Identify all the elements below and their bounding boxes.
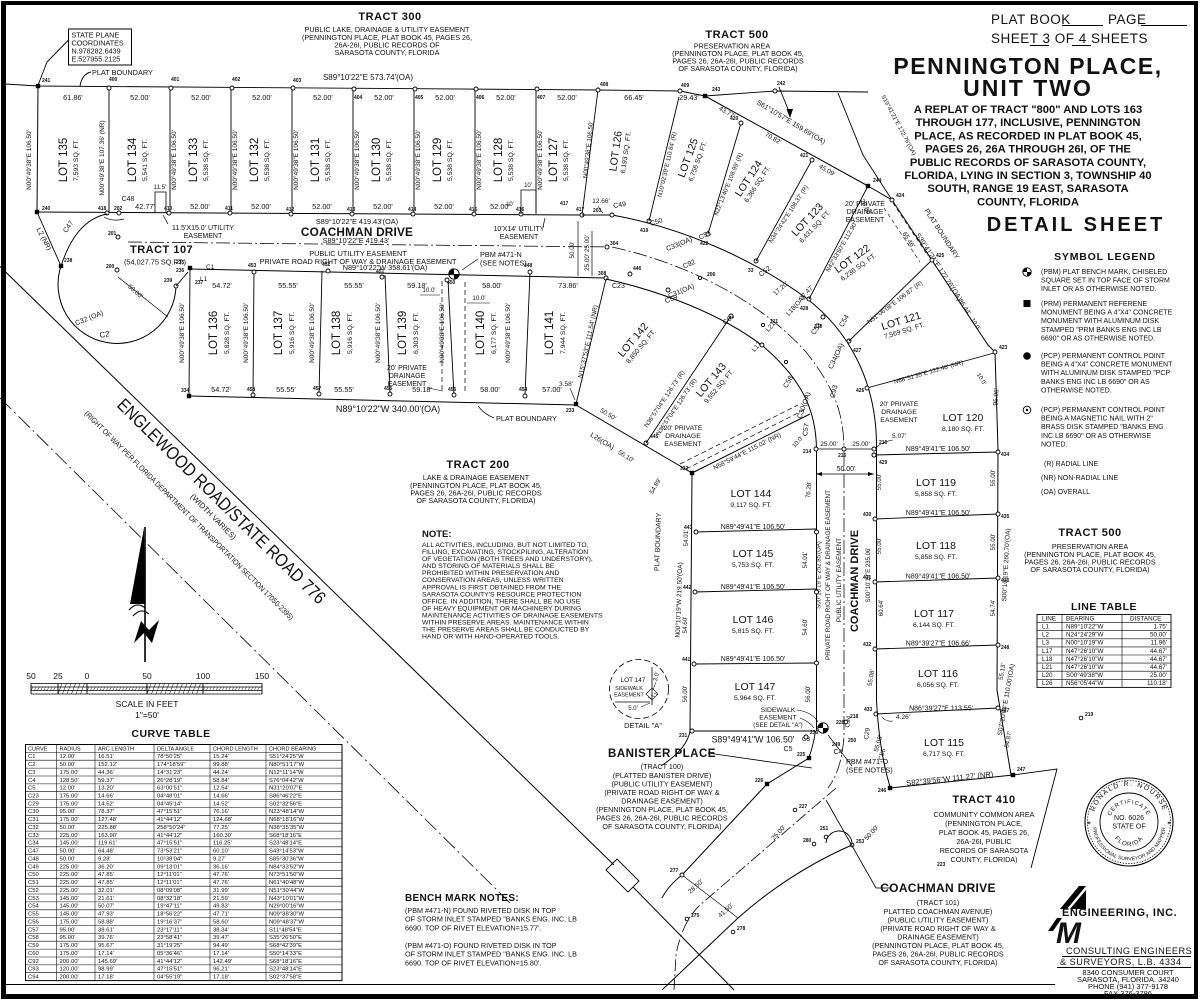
svg-text:NOTED.: NOTED. [1041,441,1068,448]
svg-text:52.00': 52.00' [434,202,454,211]
svg-text:36.20': 36.20' [98,864,114,870]
svg-text:163.90': 163.90' [98,833,117,839]
svg-text:LOT 140: LOT 140 [475,311,487,356]
svg-text:403: 403 [293,78,302,84]
svg-text:BANISTER PLACE: BANISTER PLACE [608,748,716,760]
svg-text:PLAT BOUNDARY: PLAT BOUNDARY [92,68,153,77]
svg-text:N61°40'48"W: N61°40'48"W [269,880,304,886]
svg-text:231: 231 [679,733,688,739]
svg-text:443: 443 [684,525,693,531]
svg-text:N00°49'38"E 106.50': N00°49'38"E 106.50' [292,130,300,190]
svg-text:C34: C34 [28,841,40,847]
svg-text:433: 433 [864,707,873,713]
svg-text:N56°05'44"W: N56°05'44"W [1066,679,1104,687]
svg-text:401: 401 [171,77,180,83]
svg-text:DRAINAGE: DRAINAGE [665,433,701,440]
svg-text:7,944 SQ. FT.: 7,944 SQ. FT. [560,312,567,354]
svg-text:10'X14' UTILITY: 10'X14' UTILITY [494,226,545,233]
svg-text:21.61': 21.61' [98,896,114,902]
svg-text:47°15'51": 47°15'51" [157,967,182,973]
svg-text:5,753 SQ. FT.: 5,753 SQ. FT. [732,562,774,569]
svg-text:LOT 139: LOT 139 [397,311,409,356]
svg-text:(SEE NOTES): (SEE NOTES) [480,259,527,268]
svg-text:C31: C31 [28,817,39,823]
svg-text:LOT 136: LOT 136 [208,311,220,356]
svg-text:408: 408 [600,82,609,88]
svg-text:ALL ACTIVITIES, INCLUDING, BUT: ALL ACTIVITIES, INCLUDING, BUT NOT LIMIT… [422,542,589,549]
svg-text:LOT 131: LOT 131 [310,138,322,183]
svg-text:44.67': 44.67' [1150,648,1167,655]
svg-text:25.00': 25.00' [1150,672,1167,679]
svg-text:239: 239 [164,278,173,284]
svg-text:TRACT 300: TRACT 300 [358,11,421,23]
svg-text:6,177 SQ. FT.: 6,177 SQ. FT. [491,312,498,354]
svg-text:N00°49'38"E 106.50': N00°49'38"E 106.50' [504,303,512,363]
svg-text:454: 454 [519,387,528,393]
svg-text:N00°49'38"E 106.50': N00°49'38"E 106.50' [414,130,422,190]
svg-text:L21: L21 [1042,664,1053,671]
svg-text:NOTE:: NOTE: [422,529,452,540]
svg-text:419: 419 [640,228,649,234]
svg-text:50.00': 50.00' [569,242,576,259]
svg-text:95.67': 95.67' [98,943,114,949]
svg-text:PLACE, AS RECORDED IN PLAT BOO: PLACE, AS RECORDED IN PLAT BOOK 45, [914,130,1142,142]
svg-text:78.37': 78.37' [98,809,114,815]
svg-text:RECORDS OF SARASOTA: RECORDS OF SARASOTA [940,846,1029,855]
svg-text:C5: C5 [28,786,36,792]
svg-text:BEING A MAGNETIC NAIL WITH 2": BEING A MAGNETIC NAIL WITH 2" [1041,416,1153,423]
svg-text:225: 225 [797,752,806,758]
svg-text:211: 211 [770,319,778,325]
svg-text:08°09'08": 08°09'08" [157,888,182,894]
svg-text:COMMUNITY COMMON AREA: COMMUNITY COMMON AREA [934,810,1035,819]
svg-text:N00°49'38"E 107.36' (NR): N00°49'38"E 107.36' (NR) [98,120,106,195]
svg-text:11.5'X15.0' UTILITY: 11.5'X15.0' UTILITY [172,225,234,232]
svg-text:CONSULTING ENGINEERS: CONSULTING ENGINEERS [1066,946,1192,956]
svg-text:55.55': 55.55' [278,281,298,290]
svg-text:6,144 SQ. FT.: 6,144 SQ. FT. [913,622,955,629]
svg-text:✶: ✶ [1166,820,1171,827]
svg-text:428: 428 [800,306,809,312]
svg-text:14.66': 14.66' [98,794,114,800]
svg-text:426: 426 [856,388,865,394]
svg-text:C59: C59 [28,943,39,949]
svg-text:52.00': 52.00' [557,93,577,102]
svg-text:STAMPED "PRM BANKS ENG INC LB: STAMPED "PRM BANKS ENG INC LB [1041,327,1162,334]
svg-text:277: 277 [670,868,679,874]
svg-text:455: 455 [448,387,457,393]
svg-text:6,303 SQ. FT.: 6,303 SQ. FT. [413,312,420,354]
svg-text:DISTANCE: DISTANCE [1130,615,1161,622]
svg-text:95.00': 95.00' [60,935,76,941]
svg-text:N89°10'22"W 358.61'(OA): N89°10'22"W 358.61'(OA) [343,263,428,272]
svg-text:LOT 145: LOT 145 [733,548,774,560]
svg-text:244: 244 [873,178,882,184]
svg-text:LOT 129: LOT 129 [432,138,444,183]
svg-text:32.01': 32.01' [98,888,114,894]
svg-text:145.00': 145.00' [60,904,79,910]
svg-text:STATE OF: STATE OF [1112,824,1145,831]
svg-text:128.50': 128.50' [60,778,79,784]
svg-text:14°31'23": 14°31'23" [157,770,182,776]
svg-text:33: 33 [748,268,754,274]
svg-text:55.55': 55.55' [334,385,354,394]
svg-text:253: 253 [856,839,865,845]
svg-text:EASEMENT: EASEMENT [614,693,644,699]
svg-text:44.24': 44.24' [213,770,229,776]
svg-text:SARASOTA COUNTY'S RESOURCE PRO: SARASOTA COUNTY'S RESOURCE PROTECTION [422,591,581,598]
svg-text:S35°26'50"E: S35°26'50"E [269,935,302,941]
svg-text:S76°04'42"W: S76°04'42"W [269,778,304,784]
svg-text:N00°49'38"E 106.50': N00°49'38"E 106.50' [178,303,186,363]
svg-text:36.16': 36.16' [213,864,229,870]
svg-text:N80°51'17"W: N80°51'17"W [269,762,304,768]
svg-text:47°15'51": 47°15'51" [157,809,182,815]
svg-text:20' PRIVATE: 20' PRIVATE [664,425,703,432]
svg-text:LOT 146: LOT 146 [733,614,774,626]
svg-text:(SEE DETAIL "A"): (SEE DETAIL "A") [753,722,802,729]
svg-text:39.76': 39.76' [98,935,114,941]
svg-text:5,815 SQ. FT.: 5,815 SQ. FT. [732,628,774,635]
svg-text:175.00': 175.00' [60,817,79,823]
svg-text:EASEMENT: EASEMENT [388,381,427,388]
svg-text:N09°48'37"W: N09°48'37"W [269,919,304,925]
svg-text:DETAIL SHEET: DETAIL SHEET [987,214,1166,236]
svg-text:54.72': 54.72' [212,281,232,290]
svg-text:C51: C51 [28,880,39,886]
svg-text:C53: C53 [28,896,40,902]
svg-text:201: 201 [108,231,117,237]
svg-text:FLORIDA, LYING IN SECTION 3, T: FLORIDA, LYING IN SECTION 3, TOWNSHIP 40 [904,170,1151,182]
svg-text:A REPLAT OF TRACT "800" AND LO: A REPLAT OF TRACT "800" AND LOTS 163 [914,104,1142,116]
svg-text:73.86': 73.86' [558,281,578,290]
svg-text:N47°26'10"W: N47°26'10"W [1066,647,1104,655]
svg-text:214: 214 [803,449,812,455]
svg-text:73°53'21": 73°53'21" [157,849,182,855]
svg-text:N09°38'30"W: N09°38'30"W [269,912,304,918]
svg-text:EASEMENT: EASEMENT [500,234,539,241]
svg-text:BEING A 4"X4" CONCRETE MONUMEN: BEING A 4"X4" CONCRETE MONUMENT [1041,362,1173,369]
svg-text:N00°49'38"E 106.50': N00°49'38"E 106.50' [374,303,382,363]
svg-text:202: 202 [114,206,123,212]
svg-text:52.00': 52.00' [435,93,455,102]
svg-text:PAGES 26, 26A THROUGH 26I, OF: PAGES 26, 26A THROUGH 26I, OF THE [925,144,1131,156]
svg-text:N00°49'38"E 106.50': N00°49'38"E 106.50' [25,130,33,190]
svg-text:218: 218 [850,714,859,720]
svg-text:38.61': 38.61' [98,927,114,933]
svg-text:145.69': 145.69' [98,959,117,965]
svg-text:14.52': 14.52' [213,801,229,807]
svg-text:EASEMENT: EASEMENT [184,233,223,240]
svg-text:N47°26'10"W: N47°26'10"W [1066,663,1104,671]
svg-text:200.00': 200.00' [60,975,79,981]
svg-text:41°44'12": 41°44'12" [157,817,182,823]
svg-text:PUBLIC RECORDS OF SARASOTA COU: PUBLIC RECORDS OF SARASOTA COUNTY, [910,157,1146,169]
svg-text:CHORD BEARING: CHORD BEARING [269,746,316,752]
svg-text:S85°30'36"W: S85°30'36"W [269,856,304,862]
svg-text:247: 247 [1017,767,1026,773]
svg-text:63°00'51": 63°00'51" [157,786,182,792]
svg-text:C2: C2 [28,762,36,768]
svg-text:76.28': 76.28' [805,481,813,498]
svg-text:249: 249 [832,742,841,748]
svg-text:50.00': 50.00' [60,849,76,855]
svg-text:LOT 134: LOT 134 [127,137,139,182]
svg-text:C1: C1 [206,264,215,271]
svg-text:S00°10'19"E 252.85'(OA): S00°10'19"E 252.85'(OA) [817,541,823,609]
svg-text:17.14': 17.14' [98,951,114,957]
svg-text:C57: C57 [28,927,39,933]
svg-text:78°50'25": 78°50'25" [157,754,182,760]
svg-text:N89°49'41"E 106.50': N89°49'41"E 106.50' [906,509,970,517]
svg-text:50.00': 50.00' [60,825,76,831]
svg-text:10': 10' [506,202,514,208]
svg-text:99.88': 99.88' [213,762,229,768]
svg-text:52.00': 52.00' [190,202,210,211]
svg-text:409: 409 [681,83,690,89]
svg-text:16.51': 16.51' [98,754,114,760]
svg-text:L2: L2 [1042,632,1050,639]
svg-text:12.00': 12.00' [60,754,76,760]
svg-text:SHEET 3 OF 4 SHEETS: SHEET 3 OF 4 SHEETS [991,31,1148,46]
svg-text:20' PRIVATE: 20' PRIVATE [880,401,919,408]
svg-text:417: 417 [576,207,585,213]
svg-text:C54: C54 [28,904,40,910]
svg-text:441: 441 [682,657,691,663]
svg-text:RADIUS: RADIUS [60,746,81,752]
svg-text:LINE: LINE [1042,615,1056,622]
svg-text:LOT 133: LOT 133 [188,138,200,183]
svg-text:175.00': 175.00' [60,951,79,957]
svg-text:S02°37'58"E: S02°37'58"E [269,975,302,981]
svg-text:5,538 SQ. FT.: 5,538 SQ. FT. [325,139,332,181]
svg-text:64.48': 64.48' [98,849,114,855]
svg-text:332: 332 [680,466,689,472]
svg-text:LOT 138: LOT 138 [331,311,343,356]
svg-text:BRASS DISK STAMPED "BANKS ENG: BRASS DISK STAMPED "BANKS ENG [1041,424,1164,431]
svg-text:160.30': 160.30' [213,833,232,839]
svg-text:N00°49'38"E 106.50': N00°49'38"E 106.50' [242,303,250,363]
svg-text:LOT 115: LOT 115 [924,737,964,749]
svg-text:404: 404 [354,95,363,101]
svg-text:415: 415 [469,207,478,213]
svg-text:THROUGH 177, INCLUSIVE, PENNIN: THROUGH 177, INCLUSIVE, PENNINGTON [916,117,1141,129]
svg-text:243: 243 [712,87,721,93]
svg-text:400: 400 [109,77,118,83]
svg-text:76.16': 76.16' [213,809,229,815]
svg-text:FILLING, EXCAVATING, STOCKPILI: FILLING, EXCAVATING, STOCKPILING, ALTERA… [422,549,588,556]
svg-text:11.5': 11.5' [154,185,166,191]
svg-text:95.00': 95.00' [60,927,76,933]
svg-text:DELTA ANGLE: DELTA ANGLE [157,746,194,752]
svg-text:61.86': 61.86' [63,93,83,102]
svg-text:223: 223 [937,862,946,868]
svg-text:242: 242 [777,81,786,87]
svg-text:25.00': 25.00' [852,441,870,448]
svg-text:240: 240 [42,206,51,212]
svg-text:425: 425 [936,253,945,259]
svg-text:EASEMENT: EASEMENT [664,441,701,448]
svg-text:54.74': 54.74' [990,600,997,617]
svg-text:08°32'18": 08°32'18" [157,896,182,902]
svg-text:S89°10'22"E 419.43': S89°10'22"E 419.43' [323,236,390,245]
svg-text:116.25': 116.25' [213,841,232,847]
svg-text:215: 215 [838,453,847,459]
svg-text:436: 436 [1001,578,1010,584]
svg-text:N86°39'27"E 113.55': N86°39'27"E 113.55' [909,705,973,713]
svg-text:50.07': 50.07' [98,904,114,910]
svg-text:54.60': 54.60' [682,617,689,634]
svg-text:MAINTENANCE ACTIVITIES OF DRAI: MAINTENANCE ACTIVITIES OF DRAINAGE EASEM… [422,613,603,620]
svg-text:PROHIBITED WITHIN PRESERVATION: PROHIBITED WITHIN PRESERVATION AND [422,570,560,577]
svg-text:SOUTH, RANGE 19 EAST, SARASOTA: SOUTH, RANGE 19 EAST, SARASOTA [927,183,1128,195]
svg-text:09°13'01": 09°13'01" [157,864,182,870]
svg-text:(54,027.75 SQ.FT.): (54,027.75 SQ.FT.) [124,258,186,267]
svg-text:145.00': 145.00' [60,841,79,847]
svg-text:402: 402 [232,77,241,83]
svg-text:04°48'01": 04°48'01" [157,794,182,800]
svg-text:434: 434 [1001,452,1010,458]
svg-text:N89°49'41"E 106.50': N89°49'41"E 106.50' [721,655,785,663]
svg-text:N89°49'41"E 106.50': N89°49'41"E 106.50' [721,523,785,531]
svg-text:(NR) NON-RADIAL LINE: (NR) NON-RADIAL LINE [1041,475,1118,482]
svg-text:226: 226 [755,778,764,784]
svg-text:C29: C29 [28,801,39,807]
svg-text:S86°46'22"E: S86°46'22"E [269,794,302,800]
svg-text:LOT 144: LOT 144 [731,488,772,500]
svg-text:DRAINAGE: DRAINAGE [847,209,884,216]
svg-text:PAGE: PAGE [1108,12,1147,27]
svg-text:175.00': 175.00' [60,801,79,807]
svg-text:5,538 SQ. FT.: 5,538 SQ. FT. [447,139,454,181]
svg-text:APPROVAL IS FIRST OBTAINED FRO: APPROVAL IS FIRST OBTAINED FROM THE [422,584,561,591]
svg-text:(PCP) PERMANENT CONTROL POINT: (PCP) PERMANENT CONTROL POINT [1041,407,1166,414]
svg-text:175.00': 175.00' [60,943,79,949]
svg-text:LOT 132: LOT 132 [249,138,261,183]
svg-text:225.00': 225.00' [60,833,79,839]
svg-text:6690. TOP OF RIVET ELEVATION=1: 6690. TOP OF RIVET ELEVATION=15.80'. [405,958,541,967]
svg-text:S50°14'33"E: S50°14'33"E [269,951,302,957]
svg-text:10.0': 10.0' [472,295,485,302]
svg-text:421: 421 [800,153,809,159]
svg-text:OF STORM INLET STAMPED "BANKS: OF STORM INLET STAMPED "BANKS ENG. INC. … [405,915,577,924]
svg-text:C32: C32 [28,825,39,831]
svg-text:N24°24'29"W: N24°24'29"W [1066,631,1104,639]
svg-text:52.00': 52.00' [373,202,393,211]
svg-text:C55: C55 [28,912,40,918]
svg-text:N68°18'16"W: N68°18'16"W [269,817,304,823]
svg-text:54.60': 54.60' [802,619,809,636]
svg-text:12.66': 12.66' [592,198,610,205]
svg-text:04°45'14": 04°45'14" [157,801,182,807]
svg-text:5,964 SQ. FT.: 5,964 SQ. FT. [734,695,776,702]
svg-text:12.00': 12.00' [60,786,76,792]
svg-text:C94: C94 [28,975,40,981]
svg-text:COACHMAN DRIVE: COACHMAN DRIVE [880,881,996,895]
svg-text:52.00': 52.00' [312,202,332,211]
svg-text:9.28': 9.28' [98,856,111,862]
svg-text:N89°10'22"W: N89°10'22"W [1066,623,1104,631]
svg-text:C3: C3 [28,770,36,776]
svg-text:6,717 SQ. FT.: 6,717 SQ. FT. [923,751,965,758]
svg-text:200: 200 [106,264,115,270]
svg-text:CURVE TABLE: CURVE TABLE [131,728,210,740]
svg-text:S89°49'41"W 106.50': S89°49'41"W 106.50' [712,735,795,745]
svg-text:20' PRIVATE: 20' PRIVATE [845,201,885,208]
svg-text:29.43': 29.43' [679,93,699,102]
svg-text:C23: C23 [28,794,40,800]
svg-text:5,916 SQ. FT.: 5,916 SQ. FT. [289,312,296,354]
svg-text:52.00': 52.00' [313,93,333,102]
svg-text:DETAIL "A": DETAIL "A" [624,721,662,730]
svg-text:LOT 128: LOT 128 [493,138,505,183]
svg-text:SCALE IN FEET: SCALE IN FEET [116,699,179,709]
svg-text:406: 406 [476,95,485,101]
svg-text:230: 230 [810,730,819,736]
svg-text:56.00': 56.00' [682,686,689,703]
svg-text:INLET OR AS OTHERWISE NOTED.: INLET OR AS OTHERWISE NOTED. [1041,286,1157,293]
svg-text:LOT 127: LOT 127 [548,138,560,183]
svg-text:20' PRIVATE: 20' PRIVATE [387,365,427,372]
svg-text:TRACT 200: TRACT 200 [446,459,509,471]
svg-text:SQUARE SET IN TOP FACE OF STOR: SQUARE SET IN TOP FACE OF STORM [1041,278,1170,285]
svg-text:(PCP) PERMANENT CONTROL POINT: (PCP) PERMANENT CONTROL POINT [1041,353,1166,360]
svg-text:10': 10' [524,183,532,189]
svg-text:C56: C56 [28,919,40,925]
svg-text:47.76': 47.76' [213,880,229,886]
svg-text:448: 448 [524,263,533,269]
svg-text:50.00': 50.00' [837,466,856,473]
svg-text:MONUMENT BEING A 4"X4" CONCRET: MONUMENT BEING A 4"X4" CONCRETE [1041,310,1173,317]
svg-text:60.64': 60.64' [878,600,885,617]
svg-text:52.00': 52.00' [251,202,271,211]
svg-text:47.85': 47.85' [98,880,114,886]
svg-text:59.37': 59.37' [98,778,114,784]
svg-text:248: 248 [1001,645,1010,651]
svg-text:LINE TABLE: LINE TABLE [1071,601,1137,613]
svg-text:N38°35'35"W: N38°35'35"W [269,825,304,831]
svg-text:PLAT BOOK: PLAT BOOK [991,12,1071,27]
svg-text:(R) RADIAL LINE: (R) RADIAL LINE [1044,461,1099,468]
svg-text:N89°39'27"E 106.66': N89°39'27"E 106.66' [906,640,970,648]
svg-text:47.76': 47.76' [213,872,229,878]
svg-text:55.00': 55.00' [876,538,883,555]
svg-text:PLAT BOOK 45, PAGES 26,: PLAT BOOK 45, PAGES 26, [939,828,1029,837]
svg-text:N00°49'38"E 106.50': N00°49'38"E 106.50' [308,303,316,363]
svg-text:6690" OR AS OTHERWISE NOTED.: 6690" OR AS OTHERWISE NOTED. [1041,335,1155,342]
svg-text:145.00': 145.00' [60,896,79,902]
svg-text:452: 452 [322,262,331,268]
svg-text:423: 423 [999,345,1008,351]
svg-text:ENGINEERING, INC.: ENGINEERING, INC. [1062,907,1177,919]
svg-text:225.00': 225.00' [60,888,79,894]
svg-text:442: 442 [683,585,692,591]
svg-text:55.00': 55.00' [990,470,997,487]
svg-text:WITHIN PRESERVE AREAS. MAINTEN: WITHIN PRESERVE AREAS. MAINTENANCE WITHI… [422,620,589,627]
svg-text:SIDEWALK: SIDEWALK [615,686,643,692]
svg-text:175.00': 175.00' [60,919,79,925]
svg-text:LOT 141: LOT 141 [544,311,556,356]
svg-text:225.00': 225.00' [60,872,79,878]
svg-text:AND STORING OF MATERIALS SHALL: AND STORING OF MATERIALS SHALL BE [422,563,555,570]
svg-text:COUNTY, FLORIDA: COUNTY, FLORIDA [977,196,1079,208]
svg-text:9.27': 9.27' [213,856,226,862]
svg-text:PRIVATE ROAD RIGHT OF WAY & DR: PRIVATE ROAD RIGHT OF WAY & DRAINAGE EAS… [825,490,832,660]
svg-text:17.18': 17.18' [213,975,229,981]
svg-text:L17: L17 [1042,648,1053,655]
svg-text:(PENNINGTON PLACE,: (PENNINGTON PLACE, [945,819,1023,828]
svg-text:N00°49'38"E 106.50': N00°49'38"E 106.50' [536,130,544,190]
